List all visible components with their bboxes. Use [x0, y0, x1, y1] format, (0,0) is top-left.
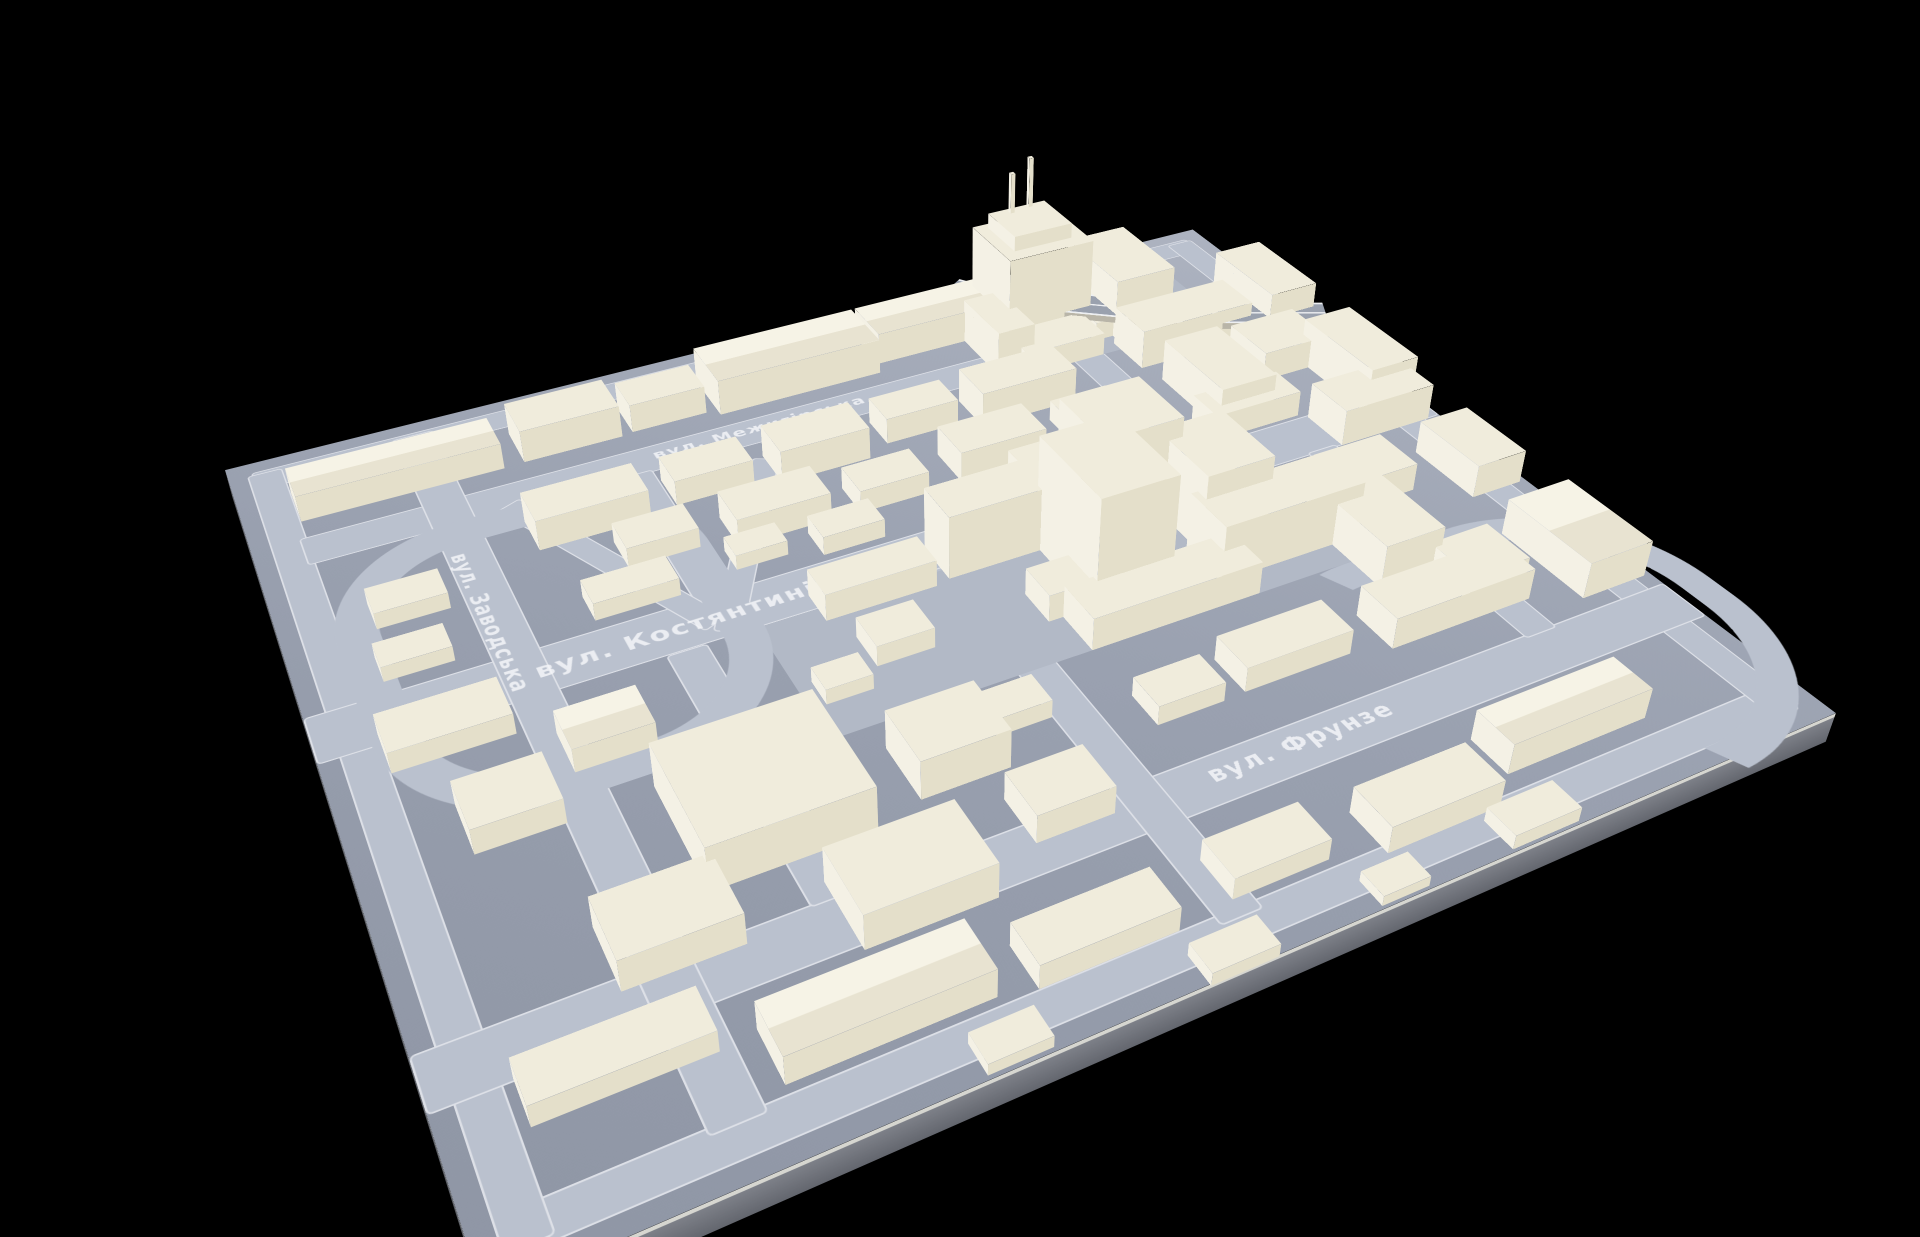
scene-perspective: вул. Заводськавул. Межигірськавул. Костя…: [0, 0, 1920, 1237]
building-block-wall: [1011, 174, 1016, 214]
model-photograph: вул. Заводськавул. Межигірськавул. Костя…: [0, 0, 1920, 1237]
model-base-board: вул. Заводськавул. Межигірськавул. Костя…: [225, 230, 1836, 1237]
building-block-wall: [1029, 158, 1034, 208]
